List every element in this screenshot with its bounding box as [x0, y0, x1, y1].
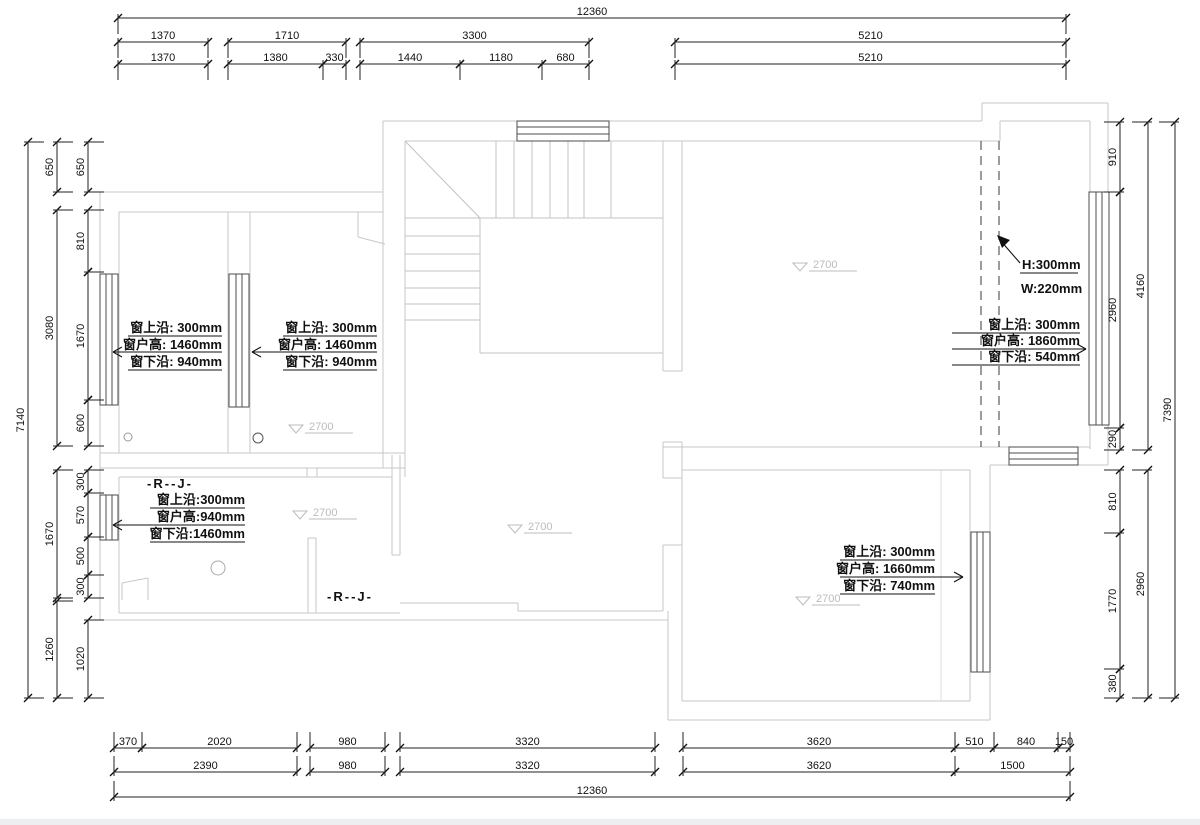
dim-label: 12360	[577, 6, 608, 18]
floor-plan-page: 2700 2700 2700 2700 2700 窗上沿: 300mm 窗户高:…	[0, 0, 1200, 825]
svg-text:-R--J-: -R--J-	[327, 589, 373, 604]
window-annotation-bottom-right: 窗上沿: 300mm 窗户高: 1660mm 窗下沿: 740mm	[836, 544, 963, 594]
win-height-label: 窗户高: 1460mm	[278, 337, 377, 352]
level-value: 2700	[816, 593, 840, 605]
level-marker: 2700	[796, 593, 860, 605]
window-annotation-top-right: 窗上沿: 300mm 窗户高: 1860mm 窗下沿: 540mm	[952, 317, 1086, 365]
dim-label: 290	[1107, 430, 1119, 448]
dim-label: 7390	[1162, 398, 1174, 422]
window-upper-left	[100, 274, 118, 405]
window-top-right	[1089, 192, 1109, 425]
dim-label: 5210	[858, 52, 882, 64]
dim-label: 600	[75, 414, 87, 432]
dim-label: 1380	[263, 52, 287, 64]
level-value: 2700	[528, 521, 552, 533]
dim-label: 500	[75, 547, 87, 565]
dim-label: 3080	[44, 316, 56, 340]
level-marker: 2700	[293, 507, 357, 519]
dim-label: 3300	[462, 30, 486, 42]
level-marker: 2700	[289, 421, 353, 433]
dim-label: 4160	[1135, 274, 1147, 298]
level-value: 2700	[313, 507, 337, 519]
beam-height-label: H:300mm	[1022, 257, 1081, 272]
dim-label: 2960	[1107, 298, 1119, 322]
window-mid-partition	[229, 274, 249, 407]
circle-symbol	[211, 561, 225, 575]
dim-label: 5210	[858, 30, 882, 42]
dim-label: 150	[1055, 736, 1073, 748]
win-bottom-edge-label: 窗下沿: 940mm	[285, 354, 377, 369]
dim-label: 1710	[275, 30, 299, 42]
win-height-label: 窗户高: 1460mm	[123, 337, 222, 352]
dim-label: 300	[75, 577, 87, 595]
dim-label: 12360	[577, 785, 608, 797]
dim-label: 810	[75, 232, 87, 250]
win-height-label: 窗户高:940mm	[157, 509, 245, 524]
win-top-edge-label: 窗上沿: 300mm	[285, 320, 377, 335]
dim-label: 300	[75, 472, 87, 490]
dim-label: 510	[965, 736, 983, 748]
dim-label: 1020	[75, 647, 87, 671]
dim-label: 1260	[44, 637, 56, 661]
windows	[100, 121, 1109, 672]
window-bottom-right	[971, 532, 990, 672]
beam-dashed-lines	[981, 141, 999, 447]
level-value: 2700	[309, 421, 333, 433]
dim-label: 1500	[1000, 760, 1024, 772]
dim-label: 330	[325, 52, 343, 64]
rj-label: -R--J-	[147, 476, 193, 491]
dim-label: 2390	[193, 760, 217, 772]
rj-label-2: -R--J-	[327, 589, 373, 604]
walls	[100, 103, 1108, 720]
dim-label: 3620	[807, 736, 831, 748]
floor-plan-canvas: 2700 2700 2700 2700 2700 窗上沿: 300mm 窗户高:…	[0, 0, 1200, 825]
window-annotation-upper-left-b: 窗上沿: 300mm 窗户高: 1460mm 窗下沿: 940mm	[252, 320, 377, 370]
win-top-edge-label: 窗上沿: 300mm	[988, 317, 1080, 332]
dim-label: 810	[1107, 492, 1119, 510]
dim-label: 1180	[489, 52, 513, 64]
dim-label: 910	[1107, 148, 1119, 166]
window-edge-strip	[0, 819, 1200, 825]
circle-symbol	[253, 433, 263, 443]
win-bottom-edge-label: 窗下沿: 940mm	[130, 354, 222, 369]
dim-label: 1440	[398, 52, 422, 64]
window-annotation-upper-left-a: 窗上沿: 300mm 窗户高: 1460mm 窗下沿: 940mm	[113, 320, 222, 370]
win-bottom-edge-label: 窗下沿:1460mm	[150, 526, 245, 541]
dim-label: 370	[119, 736, 137, 748]
win-top-edge-label: 窗上沿:300mm	[157, 492, 245, 507]
window-bay-bottom	[1009, 447, 1078, 465]
dim-label: 1370	[151, 30, 175, 42]
level-marker: 2700	[793, 259, 857, 271]
dim-label: 980	[338, 736, 356, 748]
dim-label: 840	[1017, 736, 1035, 748]
level-marker: 2700	[508, 521, 572, 533]
level-value: 2700	[813, 259, 837, 271]
window-annotation-lower-left: -R--J- 窗上沿:300mm 窗户高:940mm 窗下沿:1460mm	[113, 476, 245, 542]
win-height-label: 窗户高: 1860mm	[981, 333, 1080, 348]
dim-label: 1770	[1107, 589, 1119, 613]
win-top-edge-label: 窗上沿: 300mm	[130, 320, 222, 335]
dim-label: 980	[338, 760, 356, 772]
dim-label: 380	[1107, 674, 1119, 692]
win-bottom-edge-label: 窗下沿: 540mm	[988, 349, 1080, 364]
dim-label: 570	[75, 506, 87, 524]
dim-label: 3320	[515, 760, 539, 772]
dim-label: 680	[556, 52, 574, 64]
level-markers: 2700 2700 2700 2700 2700	[289, 259, 860, 605]
staircase	[405, 141, 663, 353]
dim-label: 3620	[807, 760, 831, 772]
dim-label: 1670	[75, 324, 87, 348]
win-bottom-edge-label: 窗下沿: 740mm	[843, 578, 935, 593]
dim-label: 2020	[207, 736, 231, 748]
window-lower-left	[100, 495, 118, 540]
dim-label: 7140	[15, 408, 27, 432]
win-height-label: 窗户高: 1660mm	[836, 561, 935, 576]
win-top-edge-label: 窗上沿: 300mm	[843, 544, 935, 559]
dim-label: 650	[75, 158, 87, 176]
dim-label: 1670	[44, 522, 56, 546]
dim-label: 3320	[515, 736, 539, 748]
beam-note: H:300mm W:220mm	[997, 235, 1082, 296]
circle-symbol	[124, 433, 132, 441]
dim-label: 1370	[151, 52, 175, 64]
dim-label: 650	[44, 158, 56, 176]
window-top-stair	[517, 121, 609, 141]
beam-width-label: W:220mm	[1021, 281, 1082, 296]
dim-label: 2960	[1135, 572, 1147, 596]
